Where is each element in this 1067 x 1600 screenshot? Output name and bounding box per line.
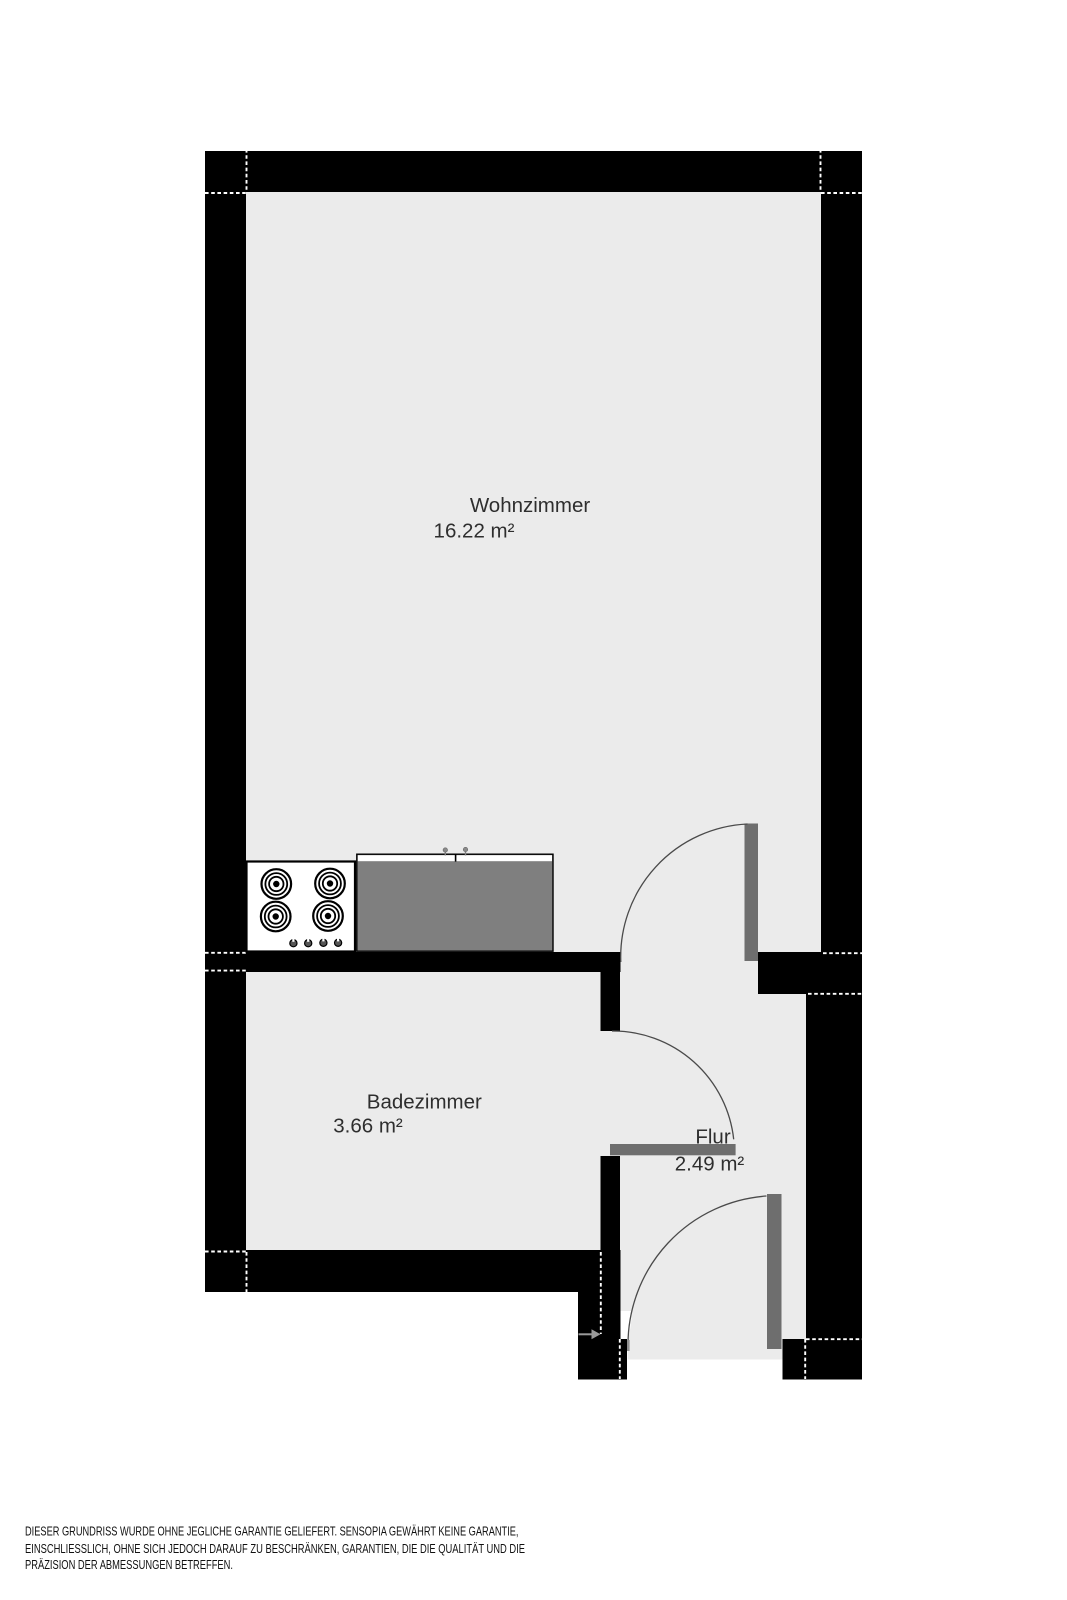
svg-text:DIESER GRUNDRISS WURDE OHNE JE: DIESER GRUNDRISS WURDE OHNE JEGLICHE GAR… [25, 1524, 519, 1539]
svg-text:PRÄZISION DER ABMESSUNGEN BETR: PRÄZISION DER ABMESSUNGEN BETREFFEN. [25, 1557, 233, 1572]
svg-text:3.66 m²: 3.66 m² [333, 1115, 403, 1138]
svg-text:Wohnzimmer: Wohnzimmer [470, 494, 591, 517]
svg-text:2.49 m²: 2.49 m² [675, 1153, 745, 1176]
svg-text:Badezimmer: Badezimmer [367, 1090, 482, 1113]
svg-text:Flur: Flur [695, 1126, 730, 1149]
svg-text:16.22 m²: 16.22 m² [434, 520, 515, 543]
svg-text:EINSCHLIESSLICH, OHNE SICH JED: EINSCHLIESSLICH, OHNE SICH JEDOCH DARAUF… [25, 1541, 525, 1556]
